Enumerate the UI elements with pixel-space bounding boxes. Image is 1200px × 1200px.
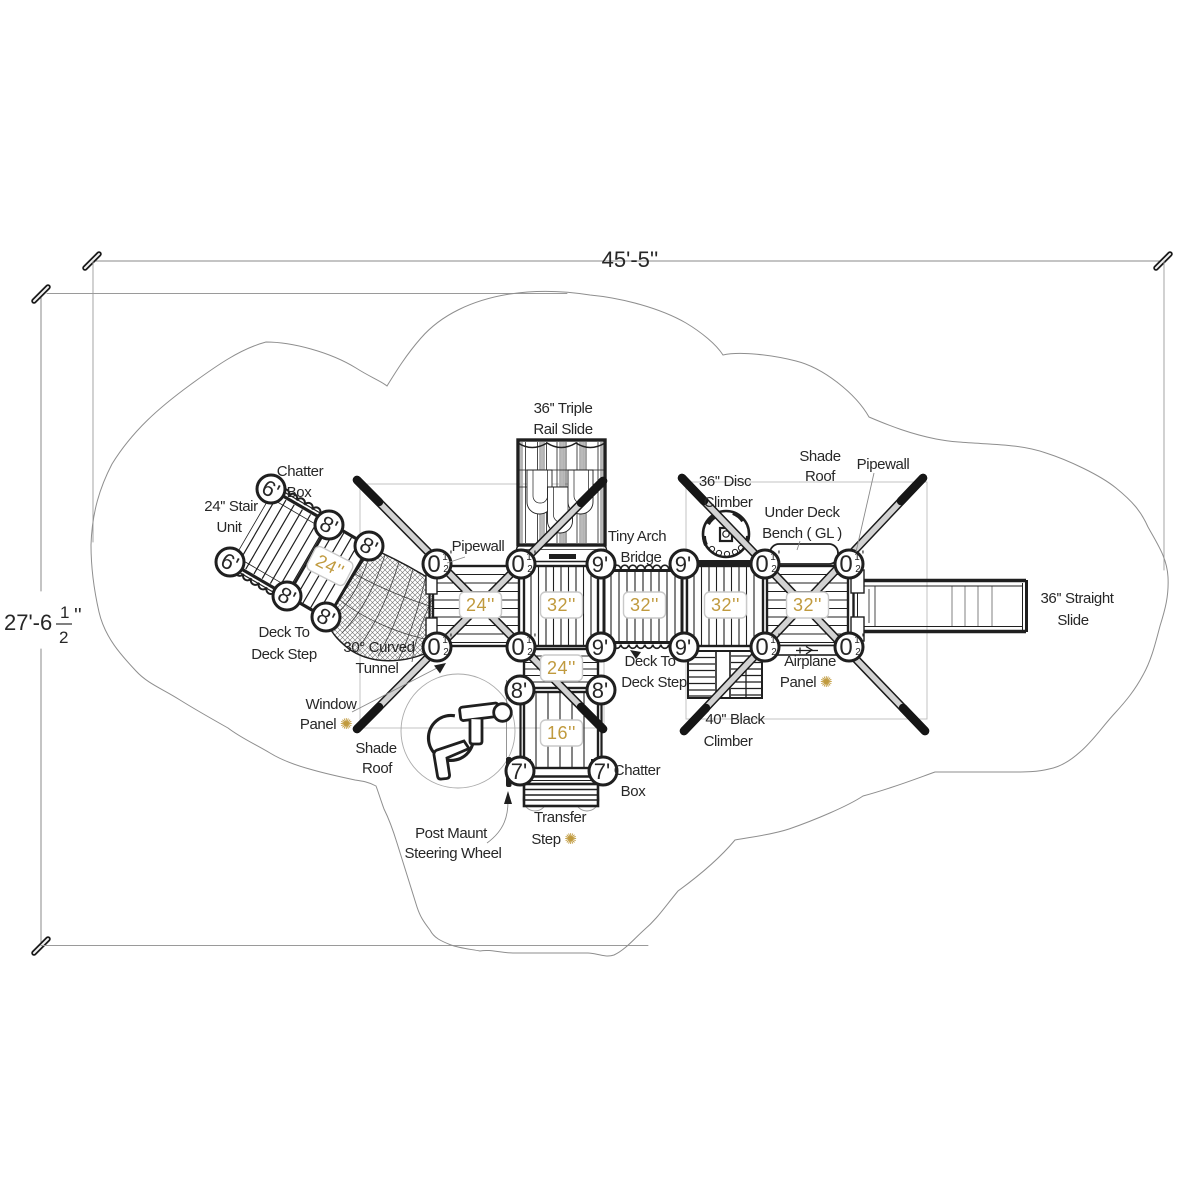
- svg-text:1: 1: [526, 635, 532, 646]
- svg-text:Bench ( GL ): Bench ( GL ): [762, 525, 842, 542]
- svg-text:2: 2: [527, 564, 533, 575]
- svg-text:0: 0: [511, 634, 524, 661]
- svg-text:36'' Straight: 36'' Straight: [1040, 590, 1114, 607]
- svg-text:7': 7': [594, 759, 610, 784]
- svg-text:Deck To: Deck To: [624, 653, 675, 670]
- svg-text:Box: Box: [621, 783, 647, 800]
- svg-text:2: 2: [771, 647, 777, 658]
- svg-text:1: 1: [442, 635, 448, 646]
- svg-text:1: 1: [526, 552, 532, 563]
- svg-text:Roof: Roof: [362, 760, 393, 777]
- svg-text:0: 0: [755, 634, 768, 661]
- svg-text:Tiny Arch: Tiny Arch: [608, 528, 666, 545]
- svg-text:27'-6: 27'-6: [4, 610, 52, 635]
- svg-text:2: 2: [855, 564, 861, 575]
- svg-text:Bridge: Bridge: [621, 549, 662, 566]
- svg-text:32'': 32'': [630, 595, 659, 615]
- svg-text:7': 7': [511, 759, 527, 784]
- svg-text:9': 9': [675, 552, 691, 577]
- svg-text:24'': 24'': [466, 595, 495, 615]
- svg-text:8': 8': [511, 678, 527, 703]
- svg-text:1: 1: [854, 552, 860, 563]
- svg-text:'': '': [74, 605, 82, 627]
- svg-text:2: 2: [855, 647, 861, 658]
- svg-text:Unit: Unit: [216, 519, 242, 536]
- svg-text:0: 0: [839, 634, 852, 661]
- svg-text:32'': 32'': [711, 595, 740, 615]
- svg-text:2: 2: [59, 628, 68, 647]
- svg-text:24'': 24'': [547, 658, 576, 678]
- svg-text:Slide: Slide: [1057, 612, 1088, 629]
- svg-text:32'': 32'': [793, 595, 822, 615]
- svg-text:Chatter: Chatter: [277, 463, 324, 480]
- svg-text:24'' Stair: 24'' Stair: [204, 498, 258, 515]
- svg-text:': ': [862, 547, 865, 563]
- svg-text:1: 1: [770, 552, 776, 563]
- svg-text:2: 2: [443, 647, 449, 658]
- svg-text:36'' Triple: 36'' Triple: [534, 400, 593, 417]
- svg-text:Deck To: Deck To: [258, 624, 309, 641]
- svg-text:40'' Black: 40'' Black: [705, 711, 765, 728]
- svg-text:Pipewall: Pipewall: [452, 538, 505, 555]
- svg-text:2: 2: [527, 647, 533, 658]
- svg-text:9': 9': [592, 552, 608, 577]
- svg-text:0: 0: [427, 634, 440, 661]
- svg-text:Deck Step: Deck Step: [621, 674, 687, 691]
- svg-text:Tunnel: Tunnel: [356, 660, 399, 677]
- svg-text:32'': 32'': [547, 595, 576, 615]
- svg-text:Under Deck: Under Deck: [764, 504, 840, 521]
- svg-text:36'' Disc: 36'' Disc: [699, 473, 752, 490]
- svg-text:Airplane: Airplane: [784, 653, 836, 670]
- svg-text:': ': [862, 630, 865, 646]
- svg-text:Post Maunt: Post Maunt: [415, 825, 488, 842]
- svg-text:': ': [534, 547, 537, 563]
- svg-text:Climber: Climber: [704, 733, 753, 750]
- svg-text:0: 0: [839, 551, 852, 578]
- svg-text:Roof: Roof: [805, 468, 836, 485]
- svg-text:2: 2: [771, 564, 777, 575]
- svg-text:Box: Box: [287, 484, 313, 501]
- svg-text:9': 9': [675, 635, 691, 660]
- svg-text:Shade: Shade: [355, 740, 396, 757]
- svg-text:0: 0: [755, 551, 768, 578]
- svg-text:Step ✺: Step ✺: [531, 831, 576, 848]
- svg-text:16'': 16'': [547, 723, 576, 743]
- svg-text:Shade: Shade: [799, 448, 840, 465]
- svg-text:Climber: Climber: [704, 494, 753, 511]
- svg-text:': ': [450, 630, 453, 646]
- svg-text:30° Curved: 30° Curved: [343, 639, 414, 656]
- svg-text:': ': [534, 630, 537, 646]
- svg-text:45'-5'': 45'-5'': [602, 247, 659, 272]
- svg-text:1: 1: [60, 603, 69, 622]
- svg-text:Transfer: Transfer: [534, 809, 586, 826]
- svg-text:1: 1: [854, 635, 860, 646]
- svg-text:Window: Window: [306, 696, 358, 713]
- svg-text:1: 1: [770, 635, 776, 646]
- svg-text:Steering Wheel: Steering Wheel: [405, 845, 502, 862]
- svg-text:8': 8': [592, 678, 608, 703]
- svg-text:Panel ✺: Panel ✺: [780, 674, 832, 691]
- svg-text:9': 9': [592, 635, 608, 660]
- svg-text:1: 1: [442, 552, 448, 563]
- svg-text:': ': [778, 630, 781, 646]
- svg-text:0: 0: [427, 551, 440, 578]
- svg-text:Chatter: Chatter: [614, 762, 661, 779]
- svg-text:Pipewall: Pipewall: [857, 456, 910, 473]
- svg-text:Panel ✺: Panel ✺: [300, 716, 352, 733]
- svg-text:': ': [778, 547, 781, 563]
- svg-text:2: 2: [443, 564, 449, 575]
- svg-text:Deck Step: Deck Step: [251, 646, 317, 663]
- svg-text:Rail Slide: Rail Slide: [533, 421, 592, 438]
- svg-text:0: 0: [511, 551, 524, 578]
